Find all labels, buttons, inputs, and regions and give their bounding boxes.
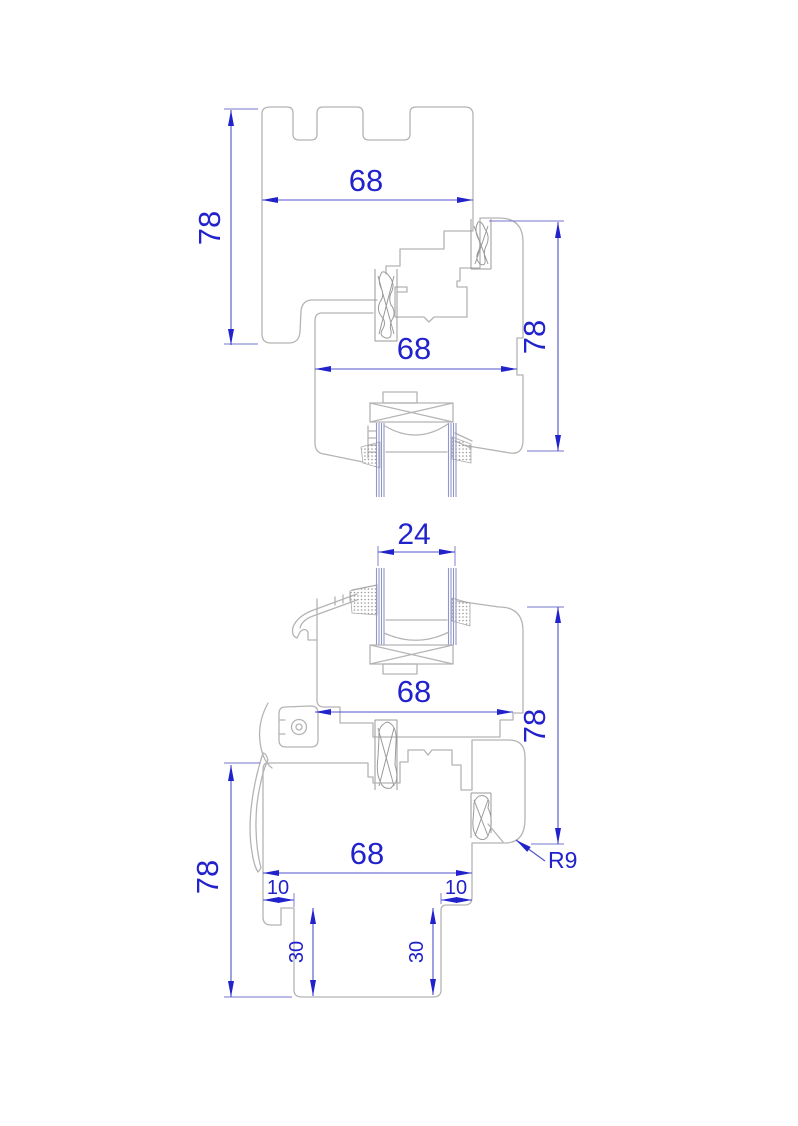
dim-glazing-thickness: 24	[378, 518, 455, 566]
dim-bottom-sash-width: 68	[315, 674, 513, 712]
dim-bottom-frame-width: 68	[263, 836, 472, 873]
gasket-top-center	[375, 269, 397, 341]
drip-rail	[293, 593, 358, 640]
gasket-top-right	[471, 219, 491, 269]
dim-top-frame-width-label: 68	[349, 163, 383, 198]
dim-top-frame-height-label: 78	[192, 211, 227, 245]
sealant-block-bottom-right	[452, 598, 470, 626]
dim-groove-depth-left-label: 30	[286, 941, 308, 963]
dim-bottom-frame-width-label: 68	[350, 836, 384, 871]
dim-bottom-height-right-label: 78	[517, 709, 552, 743]
bottom-sash-profile	[317, 585, 523, 737]
gasket-bottom-right	[471, 793, 503, 842]
gasket-bottom-center	[375, 720, 397, 790]
dim-groove-depth-left: 30	[286, 908, 313, 996]
dim-top-sash-height-label: 78	[517, 320, 552, 354]
bottom-section-profiles	[250, 568, 525, 997]
top-section-profiles	[262, 107, 523, 497]
dim-groove-depth-right: 30	[406, 908, 433, 995]
glazing-block-bottom	[370, 645, 453, 674]
window-profile-drawing-page: 68 78 68 78 24 68	[0, 0, 798, 1126]
glazing-block-top	[370, 392, 453, 422]
dim-top-sash-width: 68	[315, 331, 517, 369]
dim-groove-depth-right-label: 30	[406, 941, 428, 963]
dim-top-frame-width: 68	[262, 163, 473, 200]
dim-groove-offset-left-label: 10	[267, 877, 289, 899]
dim-bottom-sash-width-label: 68	[397, 674, 431, 709]
dimensions: 68 78 68 78 24 68	[190, 109, 577, 997]
dim-top-frame-height: 78	[192, 109, 258, 345]
top-frame-profile	[262, 107, 473, 343]
dim-top-sash-width-label: 68	[397, 331, 431, 366]
sealant-block-top-right	[452, 437, 471, 463]
window-cross-section-drawing: 68 78 68 78 24 68	[0, 0, 798, 1126]
dim-bottom-height-right: 78	[517, 607, 564, 844]
sealant-block-top-left	[361, 442, 380, 468]
dim-corner-radius: R9	[516, 840, 577, 873]
dim-corner-radius-label: R9	[548, 847, 577, 873]
dim-groove-offset-left: 10	[263, 877, 294, 907]
seal-tail	[250, 753, 268, 872]
dim-top-sash-height: 78	[489, 221, 564, 451]
dim-groove-offset-right-label: 10	[445, 877, 467, 899]
dim-bottom-height-left-label: 78	[190, 860, 225, 894]
glass-unit-top	[377, 423, 457, 497]
dim-glazing-thickness-label: 24	[397, 518, 430, 551]
glass-unit-bottom	[377, 568, 457, 645]
dim-groove-offset-right: 10	[441, 877, 472, 904]
weather-bar	[260, 703, 318, 768]
